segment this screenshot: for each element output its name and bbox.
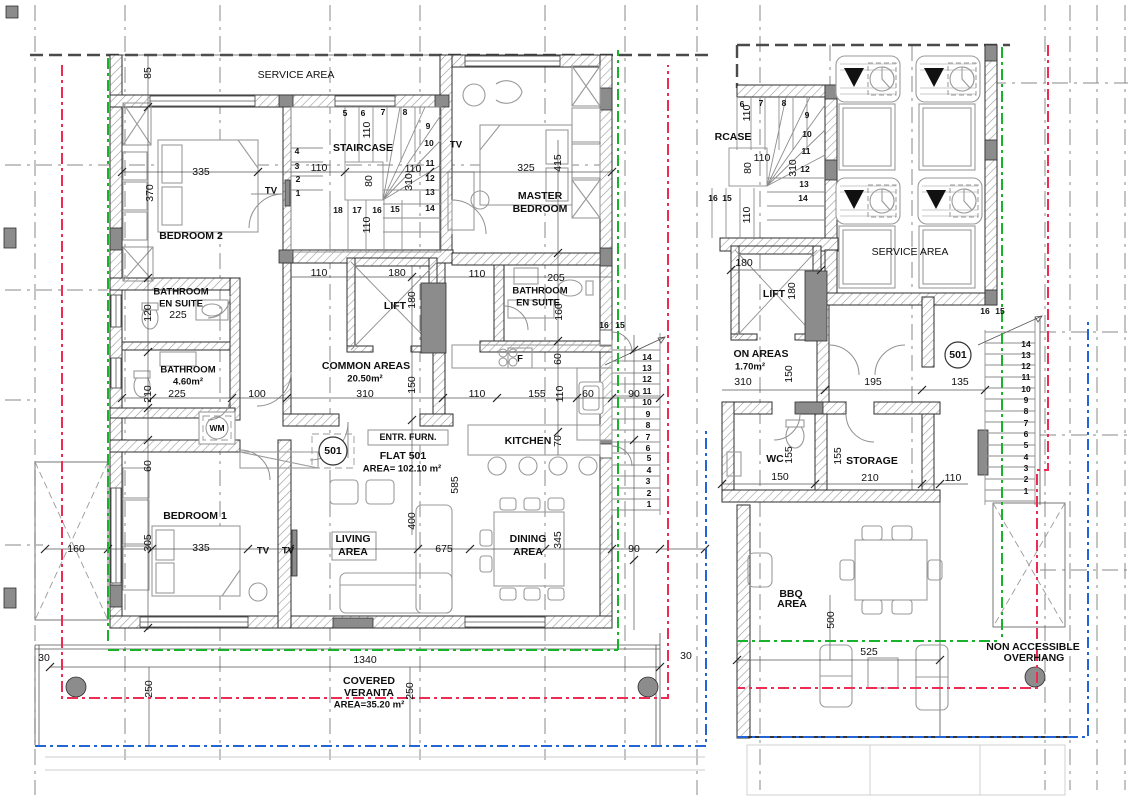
outdoor-dining-table [840,526,942,614]
dim-label: 6 [361,108,366,118]
dim-label: 10 [424,138,434,148]
dim-label: TV [265,186,278,197]
floor-plan-page: SERVICE AREA85335370BEDROOM 2TVSTAIRCASE… [0,0,1130,800]
sofa [340,573,452,613]
dim-label: 11 [643,386,652,396]
dim-label: 1.70m² [735,362,765,373]
dim-label: 70 [552,435,564,447]
dim-label: 13 [425,187,435,197]
room-label-wc: WC [766,453,784,465]
dim-label: 8 [1024,406,1029,416]
stool [579,457,597,475]
dim-label: 335 [192,542,210,554]
dim-label: 345 [552,531,564,549]
dim-label: AREA [777,598,807,610]
room-label-common-areas-partial: ON AREAS [733,348,788,360]
dim-label: 5 [343,108,348,118]
room-label-dining-area: DINING [510,533,547,545]
dim-label: 110 [469,388,486,400]
stool [549,457,567,475]
dim-label: 225 [169,309,187,321]
dim-label: 16 [708,193,718,203]
dim-label: 180 [388,267,406,279]
dim-label: 310 [734,376,752,388]
dim-label: 250 [404,682,416,700]
dim-label: TV [257,546,270,557]
dim-label: EN SUITE [159,299,203,310]
dim-label: 80 [742,162,754,174]
dim-label: 7 [1024,418,1029,428]
dim-label: 180 [406,291,418,309]
tv-unit [285,180,290,206]
entrance-furniture-label: ENTR. FURN. [380,432,437,442]
dim-label: 155 [528,388,546,400]
dim-label: 15 [722,193,732,203]
dim-label: 15 [615,320,625,330]
dim-label: 335 [192,166,210,178]
dim-label: 8 [782,98,787,108]
dim-label: 12 [1021,361,1031,371]
dim-label: 12 [425,173,435,183]
flat-title: FLAT 501 [380,450,427,462]
dim-label: 110 [754,152,771,164]
dim-label: 180 [786,282,798,300]
dim-label: 16 [372,205,382,215]
ac-unit-icon [916,56,980,102]
dim-label: 80 [363,175,375,187]
ac-unit-icon [918,178,982,224]
room-label-bathroom: BATHROOM [160,365,215,376]
service-area-units [836,56,982,224]
sofa [416,505,452,613]
dim-label: 135 [951,376,969,388]
dim-label: 16 [599,320,609,330]
dim-label: BEDROOM [513,203,568,215]
dim-label: 205 [547,272,565,284]
dim-label: 675 [435,543,453,555]
pouf [366,480,394,504]
dim-label: TV [450,140,463,151]
stool [519,457,537,475]
room-label-lift: LIFT [384,300,407,312]
room-label-bedroom2: BEDROOM 2 [159,230,223,242]
dim-label: 90 [628,543,640,555]
room-label-storage: STORAGE [846,455,898,467]
dim-label: 155 [783,446,795,464]
walls [720,45,997,738]
dim-label: 30 [680,650,692,662]
grid-column-marker [4,588,16,608]
dim-label: 16 [980,306,990,316]
dim-label: 110 [361,121,373,138]
room-label-staircase: STAIRCASE [333,142,393,154]
fridge-label: F [517,354,523,365]
room-label-living-area: LIVING [335,533,370,545]
bed-bedroom2 [158,140,258,232]
room-label-lift: LIFT [763,288,786,300]
dim-label: 195 [864,376,882,388]
dim-label: 310 [403,173,415,191]
dim-label: 585 [449,476,461,494]
flat-badge: 501 [949,349,967,361]
dim-label: 160 [67,543,85,555]
dim-label: 2 [647,488,652,498]
dim-label: 10 [1021,384,1031,394]
dim-label: 310 [787,159,799,177]
bbq-furniture [748,526,948,710]
dim-label: 14 [1021,339,1031,349]
dim-label: 150 [406,376,418,394]
dim-label: 370 [144,184,156,202]
dim-label: 7 [646,432,651,442]
dim-label: 150 [771,471,789,483]
ac-unit-icon [836,178,900,224]
grid-column-marker [6,6,18,18]
room-label-bathroom-ensuite-left: BATHROOM [153,287,208,298]
dim-label: 250 [143,680,155,698]
right-plan: SERVICE AREARCASE67891011121314161511011… [708,45,1088,795]
dim-label: 14 [798,193,808,203]
ac-unit-icon [836,56,900,102]
dim-label: 13 [1021,350,1031,360]
dim-label: 9 [426,121,431,131]
dim-label: 4.60m² [173,377,203,388]
room-label-bedroom1: BEDROOM 1 [163,510,227,522]
dim-label: 500 [825,611,837,629]
dim-label: 155 [832,447,844,465]
dim-label: 8 [646,420,651,430]
room-label-service-area: SERVICE AREA [258,69,335,81]
dim-label: 18 [333,205,343,215]
dim-label: 9 [805,110,810,120]
dim-label: 8 [403,107,408,117]
dim-label: 225 [168,388,186,400]
dim-label: 110 [311,267,328,279]
dim-label: 1 [1024,486,1029,496]
dim-label: 160 [553,303,565,321]
dim-label: AREA=35.20 m² [334,700,405,711]
bed-bedroom1 [152,526,240,596]
dim-label: 150 [783,365,795,383]
dim-label: 17 [352,205,362,215]
dim-label: 4 [647,465,652,475]
stool [488,457,506,475]
dim-label: AREA [513,546,543,558]
dim-label: 2 [1024,474,1029,484]
dim-label: 30 [38,652,50,664]
grid-column-marker [4,228,16,248]
dim-label: 210 [142,385,154,403]
dim-label: 11 [1022,372,1031,382]
coffee-table [868,658,898,688]
dim-label: OVERHANG [1004,652,1065,664]
dim-label: 3 [295,161,300,171]
dim-label: 3 [646,476,651,486]
dim-label: 5 [1024,440,1029,450]
dim-label: 15 [995,306,1005,316]
dim-label: 110 [741,206,753,223]
dim-label: 5 [647,453,652,463]
dim-label: 100 [248,388,266,400]
lamp-icon [496,81,522,104]
dim-label: 3 [1024,463,1029,473]
dim-label: 9 [646,409,651,419]
dim-label: 60 [142,460,154,472]
dim-label: 7 [381,107,386,117]
room-label-bathroom-ensuite-right: BATHROOM [512,286,567,297]
room-label-service-area: SERVICE AREA [872,246,949,258]
pouf [330,480,358,504]
column [638,677,658,697]
grid-lines [4,5,1128,795]
left-plan: SERVICE AREA85335370BEDROOM 2TVSTAIRCASE… [35,50,709,770]
dim-label: 20.50m² [347,374,382,385]
dim-label: 110 [405,163,422,175]
dim-label: 10 [642,397,652,407]
dim-label: 6 [646,443,651,453]
room-label-veranda: COVERED [343,675,395,687]
dim-label: 110 [469,268,486,280]
dim-label: 12 [800,164,810,174]
toilet-icon [786,420,804,448]
floor-plan-svg: SERVICE AREA85335370BEDROOM 2TVSTAIRCASE… [0,0,1130,800]
dim-label: 85 [142,67,154,79]
dim-label: 2 [296,174,301,184]
armchair [249,583,267,601]
kitchen-counter [452,345,612,475]
column [1025,667,1045,687]
dim-label: 11 [426,158,435,168]
dim-label: 60 [582,388,594,400]
washing-machine-label: WM [209,423,224,433]
dim-label: 1340 [353,654,377,666]
room-label-staircase-partial: RCASE [715,131,752,143]
dim-label: 310 [356,388,374,400]
dim-label: 4 [1024,452,1029,462]
staircase-exterior [605,333,665,515]
dim-label: 11 [802,146,811,156]
column [66,677,86,697]
dim-label: 415 [552,154,564,172]
dim-label: 90 [628,388,640,400]
dim-label: 7 [759,98,764,108]
dim-label: 110 [741,104,753,121]
room-label-master-bedroom: MASTER [518,190,563,202]
dim-label: 4 [295,146,300,156]
flat-area: AREA= 102.10 m² [363,464,441,475]
dim-label: 14 [642,352,652,362]
dim-label: 10 [802,129,812,139]
dim-label: 13 [642,363,652,373]
dim-label: 210 [861,472,879,484]
dim-label: 110 [361,216,373,233]
dim-label: 1 [647,499,652,509]
room-label-kitchen: KITCHEN [505,435,552,447]
room-label-common-areas: COMMON AREAS [322,360,410,372]
stair-break-line [978,316,1042,345]
dim-label: 110 [311,162,328,174]
dim-label: 525 [860,646,878,658]
dim-label: TV [282,546,295,557]
dim-label: 180 [735,257,753,269]
dim-label: 14 [425,203,435,213]
dim-label: 305 [142,534,154,552]
flat-badge: 501 [324,445,342,457]
armchair [463,84,485,106]
sink-icon [514,268,538,284]
dim-label: 110 [554,385,566,402]
dim-label: VERANTA [344,687,394,699]
dim-label: 15 [390,204,400,214]
dim-label: 13 [799,179,809,189]
dim-label: AREA [338,546,368,558]
dim-label: 120 [142,304,154,322]
dim-label: 1 [296,188,301,198]
dim-label: 400 [406,512,418,530]
dim-label: 60 [552,353,564,365]
staircase-exterior [978,316,1042,505]
side-lightwell [35,462,108,620]
dim-label: 110 [945,472,962,484]
dim-label: 9 [1024,395,1029,405]
dim-label: 12 [642,374,652,384]
dim-label: 6 [1024,429,1029,439]
dim-label: 325 [517,162,535,174]
